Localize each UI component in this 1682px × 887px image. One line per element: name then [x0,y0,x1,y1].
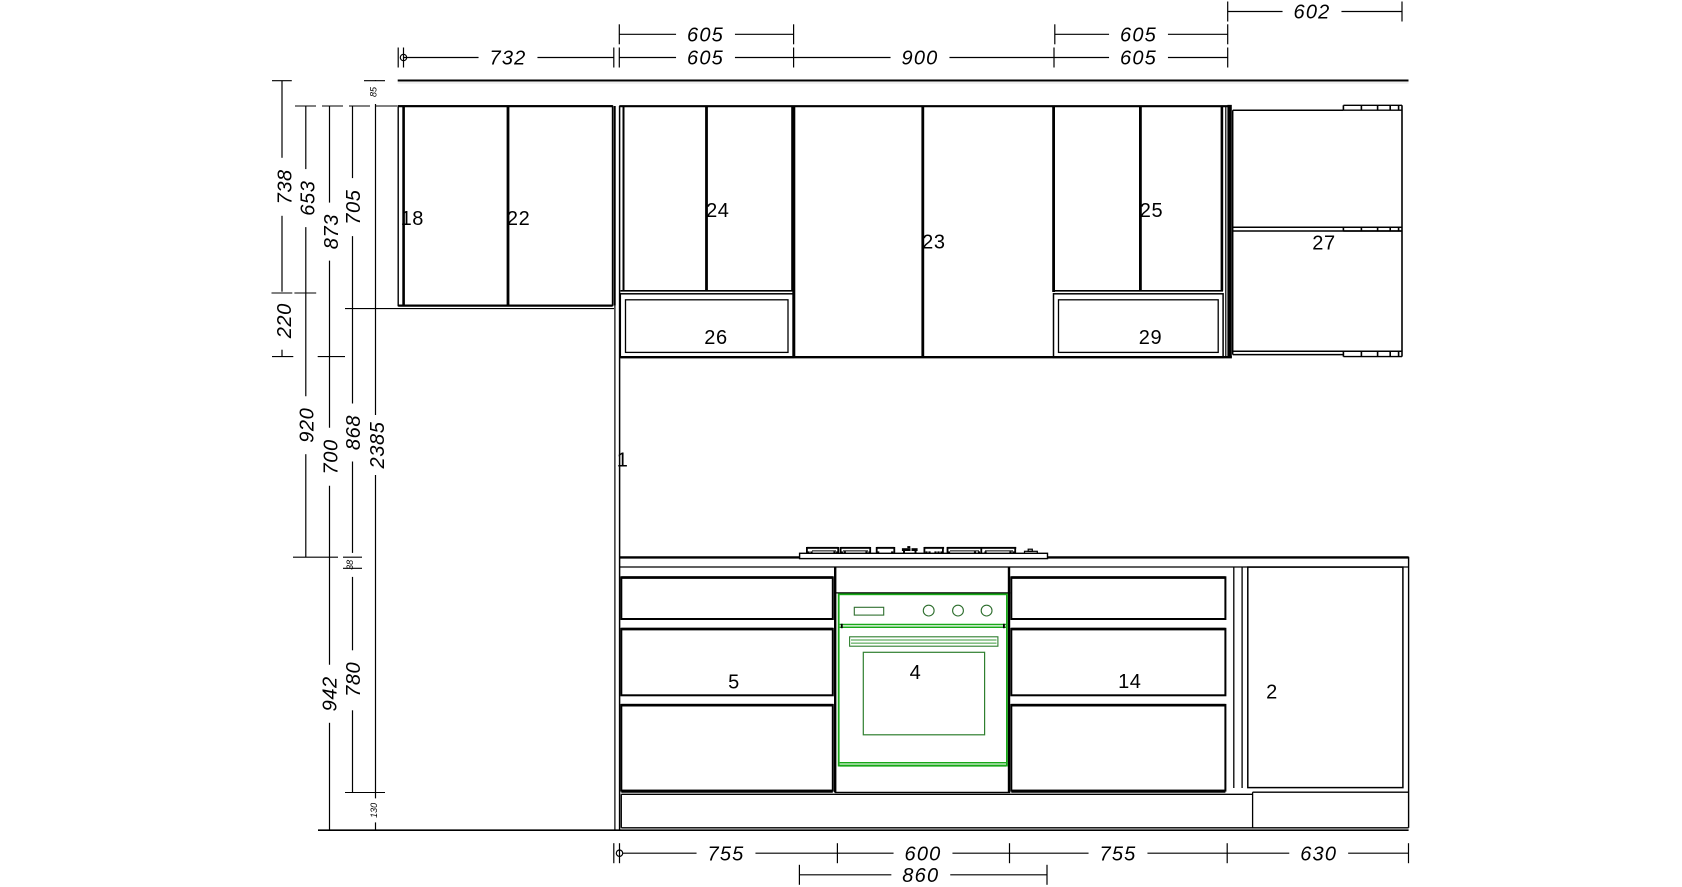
svg-text:653: 653 [298,181,320,216]
svg-text:705: 705 [343,189,365,224]
svg-text:755: 755 [708,843,745,865]
svg-text:14: 14 [1118,671,1141,693]
svg-text:23: 23 [922,232,945,254]
svg-text:605: 605 [687,48,724,70]
svg-text:605: 605 [687,25,724,47]
svg-text:600: 600 [905,843,942,865]
svg-text:2: 2 [1266,682,1278,704]
svg-text:85: 85 [368,86,378,97]
svg-text:605: 605 [1120,48,1157,70]
svg-text:27: 27 [1312,233,1335,255]
svg-text:25: 25 [1140,200,1163,222]
svg-text:26: 26 [704,327,727,349]
svg-text:602: 602 [1294,2,1331,24]
svg-text:29: 29 [1139,327,1162,349]
svg-text:220: 220 [274,303,296,339]
svg-text:920: 920 [297,408,319,443]
svg-text:24: 24 [706,200,729,222]
svg-text:738: 738 [274,169,296,204]
svg-text:873: 873 [321,214,343,249]
svg-text:2385: 2385 [367,421,389,469]
svg-text:700: 700 [320,439,342,474]
svg-text:630: 630 [1300,843,1337,865]
svg-text:732: 732 [490,48,527,70]
svg-text:755: 755 [1100,843,1137,865]
svg-text:780: 780 [343,662,365,697]
svg-text:18: 18 [401,208,424,230]
svg-text:605: 605 [1120,25,1157,47]
svg-text:900: 900 [902,48,939,70]
svg-text:4: 4 [910,662,922,684]
svg-text:130: 130 [369,803,379,818]
svg-text:942: 942 [320,676,342,711]
svg-text:868: 868 [343,415,365,450]
svg-text:1: 1 [617,450,629,472]
svg-text:5: 5 [728,671,740,693]
svg-text:860: 860 [902,865,939,887]
svg-text:22: 22 [507,208,530,230]
